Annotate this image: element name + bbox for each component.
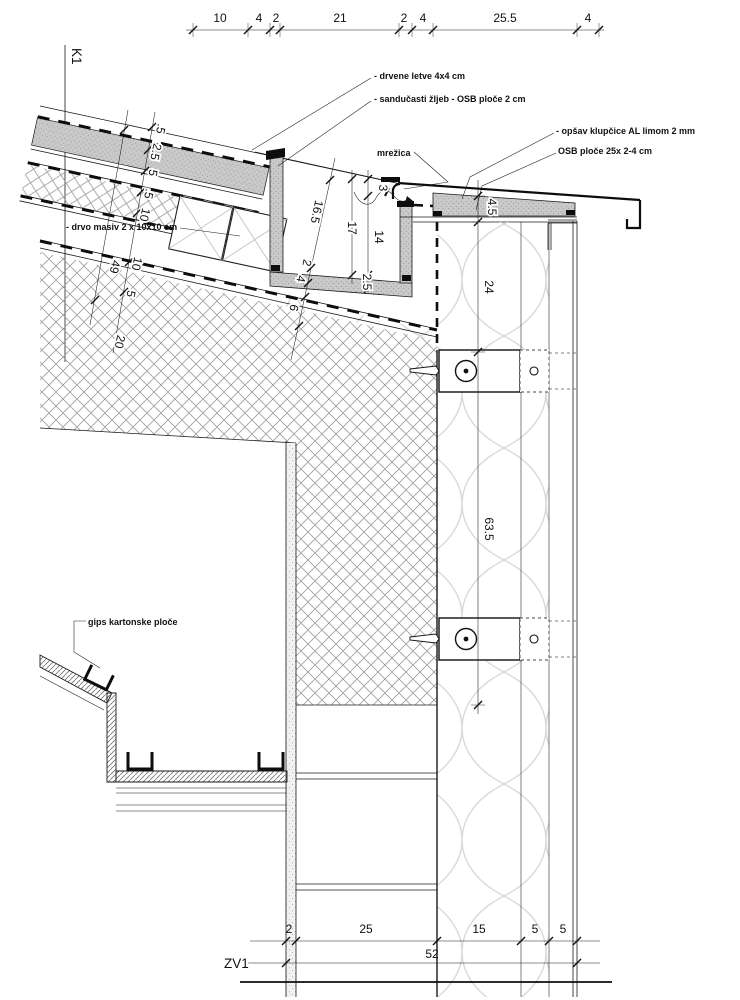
dim-top-4c: 4 xyxy=(585,11,592,25)
dim-sill-4-5: 4.5 xyxy=(485,199,499,216)
dim-top-4a: 4 xyxy=(256,11,263,25)
label-mesh: mrežica xyxy=(377,148,412,158)
detail-drawing-canvas: 10 4 2 21 2 4 25.5 4 K1 xyxy=(0,0,740,1000)
dim-bottom-total: 52 xyxy=(425,947,439,961)
bracket-pin xyxy=(530,635,538,643)
label-box-gutter: - sandučasti žljeb - OSB ploče 2 cm xyxy=(374,94,526,104)
dim-top-2a: 2 xyxy=(273,11,280,25)
dim-top-25-5: 25.5 xyxy=(493,11,517,25)
dim-gutter-2-5: 2.5 xyxy=(360,274,374,291)
inner-board xyxy=(286,443,296,997)
level-label-ZV1: ZV1 xyxy=(224,956,249,971)
gypsum-ceiling-board xyxy=(116,771,287,782)
mineral-wool-5 xyxy=(521,222,549,997)
grid-label-K1: K1 xyxy=(69,48,84,65)
dim-wall-63-5: 63.5 xyxy=(482,517,496,541)
dim-bottom-5b: 5 xyxy=(560,922,567,936)
dim-top-4b: 4 xyxy=(420,11,427,25)
label-solid-wood: - drvo masiv 2 x 10x10 cm xyxy=(66,222,177,232)
dim-gutter-17: 17 xyxy=(345,221,359,235)
gutter-left-wall xyxy=(270,154,283,272)
gutter-right-wall xyxy=(400,206,412,283)
construction-detail-drawing: 10 4 2 21 2 4 25.5 4 K1 xyxy=(0,0,740,1000)
mineral-wool-15 xyxy=(437,222,521,997)
dim-bottom-5a: 5 xyxy=(532,922,539,936)
dim-gutter-14: 14 xyxy=(372,230,386,244)
dim-top-2b: 2 xyxy=(401,11,408,25)
label-gypsum: gips kartonske ploče xyxy=(88,617,178,627)
dim-bottom-15: 15 xyxy=(472,922,486,936)
dim-bottom-25: 25 xyxy=(359,922,373,936)
dim-top-10: 10 xyxy=(213,11,227,25)
label-sill-osb: OSB ploče 25x 2-4 cm xyxy=(558,146,652,156)
label-sill-flashing: - opšav klupčice AL limom 2 mm xyxy=(556,126,695,136)
label-battens: - drvene letve 4x4 cm xyxy=(374,71,465,81)
dim-bottom-2: 2 xyxy=(286,922,293,936)
bracket-pin xyxy=(530,367,538,375)
gypsum-vertical-board xyxy=(107,693,116,782)
dim-gutter-3: 3 xyxy=(376,185,390,192)
dim-top-21: 21 xyxy=(333,11,347,25)
dim-parapet-24: 24 xyxy=(482,280,496,294)
